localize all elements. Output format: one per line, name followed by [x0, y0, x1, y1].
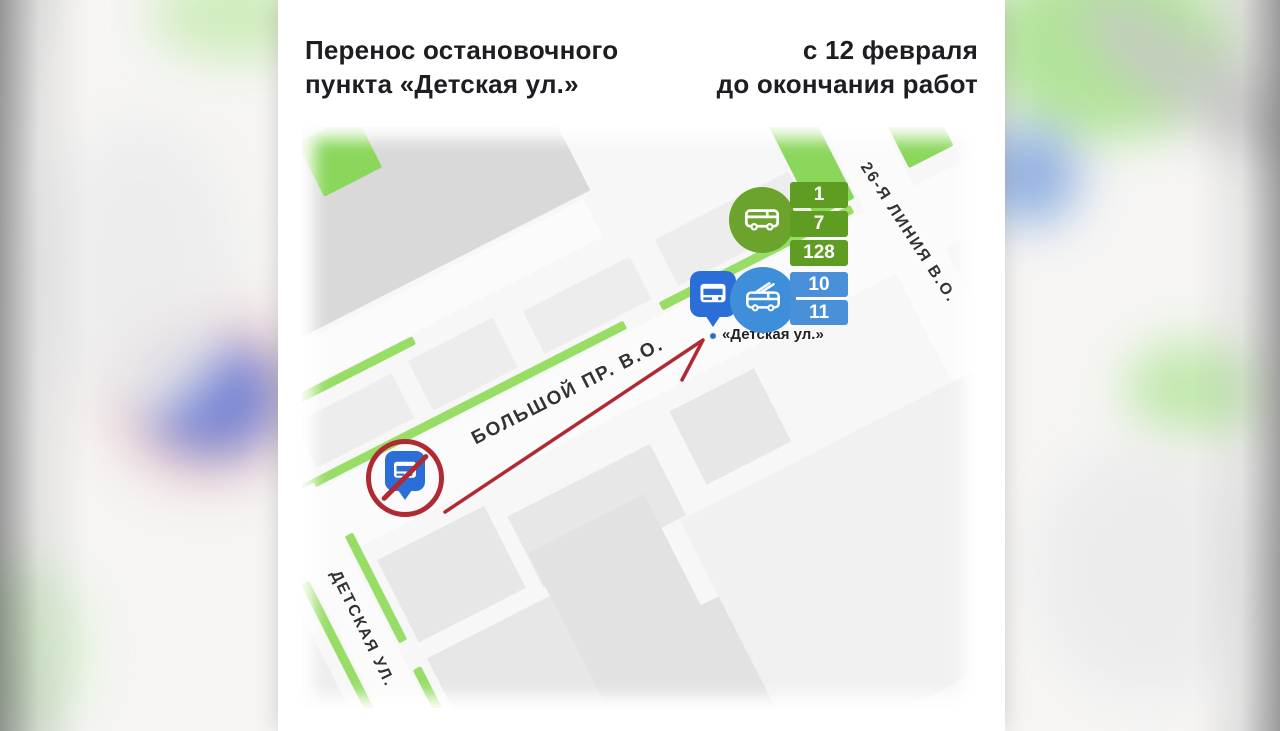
period-text: с 12 февраля до окончания работ	[717, 33, 978, 101]
trolleybus-glyph	[740, 277, 786, 323]
blurred-background-right	[1005, 0, 1280, 731]
period-line-1: с 12 февраля	[717, 33, 978, 67]
blur-blob-gray	[1035, 440, 1265, 700]
trolleybus-icon	[730, 267, 796, 333]
old-stop-marker	[366, 439, 444, 517]
poster: Перенос остановочного пункта «Детская ул…	[0, 0, 1280, 731]
page-title: Перенос остановочного пункта «Детская ул…	[305, 33, 618, 101]
route-badge: 7	[790, 211, 848, 237]
title-line-1: Перенос остановочного	[305, 33, 618, 67]
bus-route-badges: 1 7 128	[790, 182, 848, 266]
bus-glyph	[739, 197, 785, 243]
route-badge: 1	[790, 182, 848, 208]
map: БОЛЬШОЙ ПР. В.О. 26-Я ЛИНИЯ В.О. ДЕТСКАЯ…	[302, 127, 975, 708]
bus-front-icon	[698, 282, 728, 307]
blur-blob-gray	[40, 120, 240, 420]
trolleybus-route-badges: 10 11	[790, 272, 848, 325]
route-badge: 11	[790, 300, 848, 325]
blur-blob-green	[150, 0, 278, 60]
period-line-2: до окончания работ	[717, 67, 978, 101]
relocation-arrow	[302, 127, 975, 708]
route-badge: 10	[790, 272, 848, 297]
blur-blob-blue	[1005, 125, 1080, 225]
blurred-background-left	[0, 0, 278, 731]
stop-pin-icon	[690, 271, 736, 317]
blur-blob-green	[0, 560, 90, 731]
bus-icon	[729, 187, 795, 253]
stop-point-dot	[710, 333, 716, 339]
route-badge: 128	[790, 240, 848, 266]
announcement-card: Перенос остановочного пункта «Детская ул…	[278, 0, 1005, 731]
blur-blob-green	[1125, 340, 1255, 440]
title-line-2: пункта «Детская ул.»	[305, 67, 618, 101]
header: Перенос остановочного пункта «Детская ул…	[305, 33, 978, 101]
new-stop-marker	[690, 271, 736, 317]
